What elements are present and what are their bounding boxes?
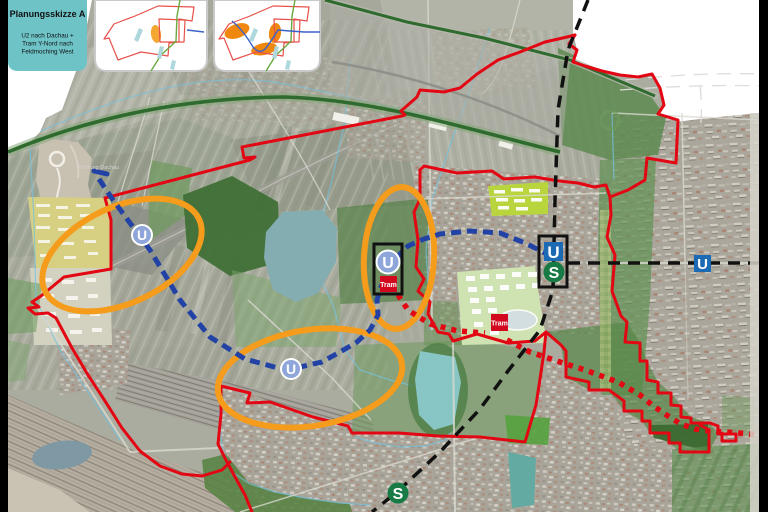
svg-text:U: U xyxy=(697,256,708,273)
svg-text:S: S xyxy=(393,486,404,503)
svg-text:S: S xyxy=(549,265,560,282)
svg-text:U: U xyxy=(382,255,394,272)
svg-text:U: U xyxy=(547,243,559,262)
svg-text:Tram Y-Nord nach: Tram Y-Nord nach xyxy=(22,41,73,48)
svg-text:Tram: Tram xyxy=(491,321,508,328)
svg-text:Tram: Tram xyxy=(380,282,397,289)
svg-text:Feldmoching West: Feldmoching West xyxy=(21,49,73,56)
svg-text:Richtung Dachau: Richtung Dachau xyxy=(77,165,119,171)
svg-text:Planungsskizze A: Planungsskizze A xyxy=(10,9,86,19)
svg-text:U: U xyxy=(286,361,296,377)
svg-text:U2 nach Dachau +: U2 nach Dachau + xyxy=(21,33,74,40)
svg-text:U: U xyxy=(137,227,147,243)
